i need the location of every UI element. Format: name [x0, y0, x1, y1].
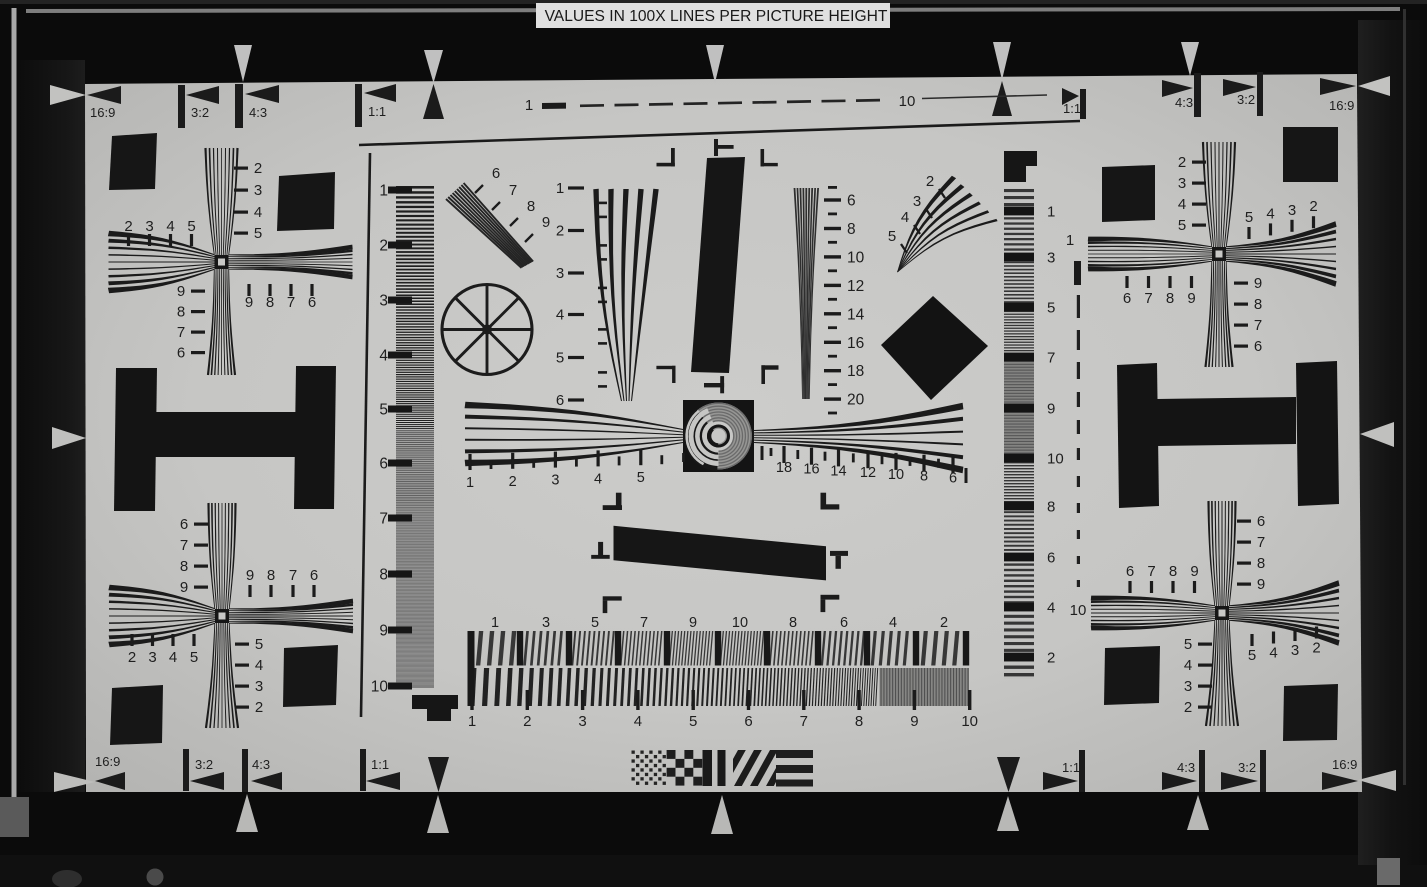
svg-text:5: 5 — [591, 615, 599, 631]
svg-text:2: 2 — [1309, 198, 1317, 215]
svg-text:10: 10 — [888, 467, 904, 483]
svg-text:5: 5 — [187, 218, 195, 235]
svg-text:3: 3 — [578, 713, 586, 730]
svg-text:10: 10 — [1047, 451, 1064, 468]
svg-text:5: 5 — [637, 470, 645, 486]
svg-text:1: 1 — [525, 97, 533, 114]
svg-text:9: 9 — [1187, 290, 1195, 307]
svg-text:16:9: 16:9 — [90, 105, 115, 120]
svg-text:14: 14 — [847, 306, 865, 323]
svg-text:10: 10 — [847, 249, 865, 266]
svg-text:9: 9 — [910, 713, 918, 730]
svg-text:3: 3 — [254, 182, 262, 199]
svg-text:5: 5 — [1245, 209, 1253, 226]
svg-text:4:3: 4:3 — [249, 105, 267, 120]
svg-text:6: 6 — [847, 193, 856, 210]
svg-text:5: 5 — [255, 636, 263, 653]
svg-text:4:3: 4:3 — [252, 757, 270, 772]
svg-text:3:2: 3:2 — [191, 105, 209, 120]
svg-text:8: 8 — [266, 294, 274, 311]
svg-text:5: 5 — [689, 713, 697, 730]
svg-text:1:1: 1:1 — [1062, 760, 1080, 775]
svg-text:2: 2 — [1047, 650, 1055, 667]
svg-text:6: 6 — [1257, 513, 1265, 530]
svg-text:9: 9 — [689, 615, 697, 631]
svg-text:18: 18 — [776, 460, 792, 476]
svg-text:4: 4 — [1047, 600, 1055, 617]
svg-text:7: 7 — [1047, 350, 1055, 367]
svg-text:6: 6 — [310, 567, 318, 584]
svg-text:14: 14 — [830, 463, 846, 479]
svg-text:6: 6 — [1126, 563, 1134, 580]
svg-text:1: 1 — [468, 713, 476, 730]
svg-text:8: 8 — [1166, 290, 1174, 307]
svg-text:10: 10 — [1070, 602, 1087, 619]
svg-text:4: 4 — [254, 204, 262, 221]
svg-text:1: 1 — [466, 475, 474, 491]
svg-text:3: 3 — [1047, 250, 1055, 267]
svg-text:5: 5 — [1248, 647, 1256, 664]
svg-text:3: 3 — [1288, 202, 1296, 219]
svg-text:2: 2 — [940, 615, 948, 631]
svg-text:5: 5 — [190, 649, 198, 666]
svg-text:7: 7 — [177, 324, 185, 341]
svg-text:9: 9 — [1190, 563, 1198, 580]
svg-text:3: 3 — [1184, 678, 1192, 695]
svg-text:4: 4 — [901, 209, 909, 226]
svg-text:5: 5 — [1178, 217, 1186, 234]
svg-text:8: 8 — [379, 567, 388, 584]
svg-text:7: 7 — [1144, 290, 1152, 307]
svg-text:6: 6 — [1123, 290, 1131, 307]
svg-text:4: 4 — [166, 218, 174, 235]
svg-text:2: 2 — [1312, 640, 1320, 657]
svg-text:2: 2 — [128, 649, 136, 666]
svg-text:8: 8 — [1254, 296, 1262, 313]
svg-text:4: 4 — [255, 657, 263, 674]
svg-text:8: 8 — [855, 713, 863, 730]
svg-text:9: 9 — [542, 214, 550, 231]
svg-text:1: 1 — [379, 183, 388, 200]
svg-text:16:9: 16:9 — [95, 754, 120, 769]
svg-text:5: 5 — [379, 402, 388, 419]
svg-text:3:2: 3:2 — [1238, 760, 1256, 775]
svg-text:2: 2 — [254, 160, 262, 177]
svg-text:6: 6 — [949, 471, 957, 487]
svg-text:6: 6 — [1254, 338, 1262, 355]
svg-text:6: 6 — [177, 345, 185, 362]
svg-text:4: 4 — [634, 713, 642, 730]
svg-text:3: 3 — [379, 293, 388, 310]
svg-text:4:3: 4:3 — [1177, 760, 1195, 775]
svg-text:9: 9 — [1257, 576, 1265, 593]
svg-text:16: 16 — [803, 462, 819, 478]
svg-text:3:2: 3:2 — [1237, 92, 1255, 107]
svg-text:3: 3 — [148, 649, 156, 666]
svg-text:8: 8 — [180, 558, 188, 575]
svg-text:4: 4 — [556, 307, 564, 324]
svg-text:7: 7 — [289, 567, 297, 584]
svg-text:12: 12 — [860, 465, 876, 481]
svg-text:4: 4 — [1266, 205, 1274, 222]
svg-text:3: 3 — [556, 265, 564, 282]
svg-text:2: 2 — [926, 173, 934, 190]
svg-text:4: 4 — [1178, 196, 1186, 213]
svg-text:2: 2 — [556, 223, 564, 240]
svg-text:9: 9 — [379, 623, 388, 640]
svg-text:8: 8 — [1257, 555, 1265, 572]
svg-text:4: 4 — [889, 615, 897, 631]
svg-text:4: 4 — [1184, 657, 1192, 674]
svg-text:6: 6 — [744, 713, 752, 730]
svg-text:6: 6 — [556, 392, 564, 409]
svg-text:3: 3 — [145, 218, 153, 235]
svg-text:5: 5 — [1184, 636, 1192, 653]
svg-text:6: 6 — [180, 516, 188, 533]
svg-text:16:9: 16:9 — [1332, 757, 1357, 772]
svg-text:7: 7 — [1254, 317, 1262, 334]
svg-text:7: 7 — [1257, 534, 1265, 551]
svg-text:9: 9 — [245, 294, 253, 311]
svg-text:16: 16 — [847, 335, 864, 352]
svg-text:6: 6 — [1047, 550, 1055, 567]
svg-text:9: 9 — [177, 283, 185, 300]
svg-text:2: 2 — [379, 238, 388, 255]
svg-text:8: 8 — [1047, 499, 1055, 516]
svg-text:3: 3 — [542, 615, 550, 631]
svg-text:1:1: 1:1 — [368, 104, 386, 119]
svg-text:8: 8 — [920, 469, 928, 485]
svg-text:4: 4 — [1269, 645, 1277, 662]
svg-text:8: 8 — [1169, 563, 1177, 580]
svg-text:VALUES IN 100X LINES PER PICTU: VALUES IN 100X LINES PER PICTURE HEIGHT — [545, 8, 888, 25]
svg-text:1:1: 1:1 — [1063, 101, 1081, 116]
svg-text:2: 2 — [509, 474, 517, 490]
svg-text:7: 7 — [287, 294, 295, 311]
svg-text:8: 8 — [177, 304, 185, 321]
svg-text:3: 3 — [255, 678, 263, 695]
svg-text:3: 3 — [551, 473, 559, 489]
svg-text:7: 7 — [800, 713, 808, 730]
svg-text:8: 8 — [789, 615, 797, 631]
svg-text:5: 5 — [1047, 300, 1055, 317]
svg-text:9: 9 — [1047, 401, 1055, 418]
svg-text:20: 20 — [847, 392, 865, 409]
svg-text:7: 7 — [1147, 563, 1155, 580]
svg-text:18: 18 — [847, 363, 864, 380]
svg-text:6: 6 — [840, 615, 848, 631]
svg-text:1: 1 — [491, 615, 499, 631]
svg-text:4: 4 — [169, 649, 177, 666]
svg-text:8: 8 — [527, 198, 535, 215]
svg-text:4: 4 — [379, 348, 388, 365]
svg-text:10: 10 — [899, 93, 916, 110]
svg-text:7: 7 — [180, 537, 188, 554]
svg-text:10: 10 — [371, 679, 389, 696]
svg-text:8: 8 — [847, 221, 856, 238]
svg-text:1:1: 1:1 — [371, 757, 389, 772]
svg-text:9: 9 — [180, 579, 188, 596]
svg-text:1: 1 — [556, 180, 564, 197]
svg-text:6: 6 — [379, 456, 388, 473]
svg-text:1: 1 — [1047, 204, 1055, 221]
svg-text:5: 5 — [888, 228, 896, 245]
svg-text:16:9: 16:9 — [1329, 98, 1354, 113]
svg-text:6: 6 — [308, 294, 316, 311]
svg-text:2: 2 — [1178, 154, 1186, 171]
svg-text:9: 9 — [1254, 275, 1262, 292]
svg-text:10: 10 — [961, 713, 978, 730]
svg-text:8: 8 — [267, 567, 275, 584]
svg-text:10: 10 — [732, 615, 748, 631]
svg-text:3:2: 3:2 — [195, 757, 213, 772]
svg-text:3: 3 — [913, 193, 921, 210]
svg-text:7: 7 — [640, 615, 648, 631]
svg-text:2: 2 — [124, 218, 132, 235]
svg-text:7: 7 — [379, 511, 388, 528]
svg-text:4: 4 — [594, 471, 602, 487]
svg-text:5: 5 — [254, 225, 262, 242]
svg-text:1: 1 — [1066, 232, 1074, 249]
svg-text:3: 3 — [1291, 642, 1299, 659]
svg-text:7: 7 — [509, 182, 517, 199]
svg-text:12: 12 — [847, 278, 864, 295]
svg-text:9: 9 — [246, 567, 254, 584]
svg-text:4:3: 4:3 — [1175, 95, 1193, 110]
svg-text:2: 2 — [255, 699, 263, 716]
svg-text:6: 6 — [492, 165, 500, 182]
svg-text:2: 2 — [523, 713, 531, 730]
svg-text:5: 5 — [556, 350, 564, 367]
svg-text:3: 3 — [1178, 175, 1186, 192]
svg-text:2: 2 — [1184, 699, 1192, 716]
